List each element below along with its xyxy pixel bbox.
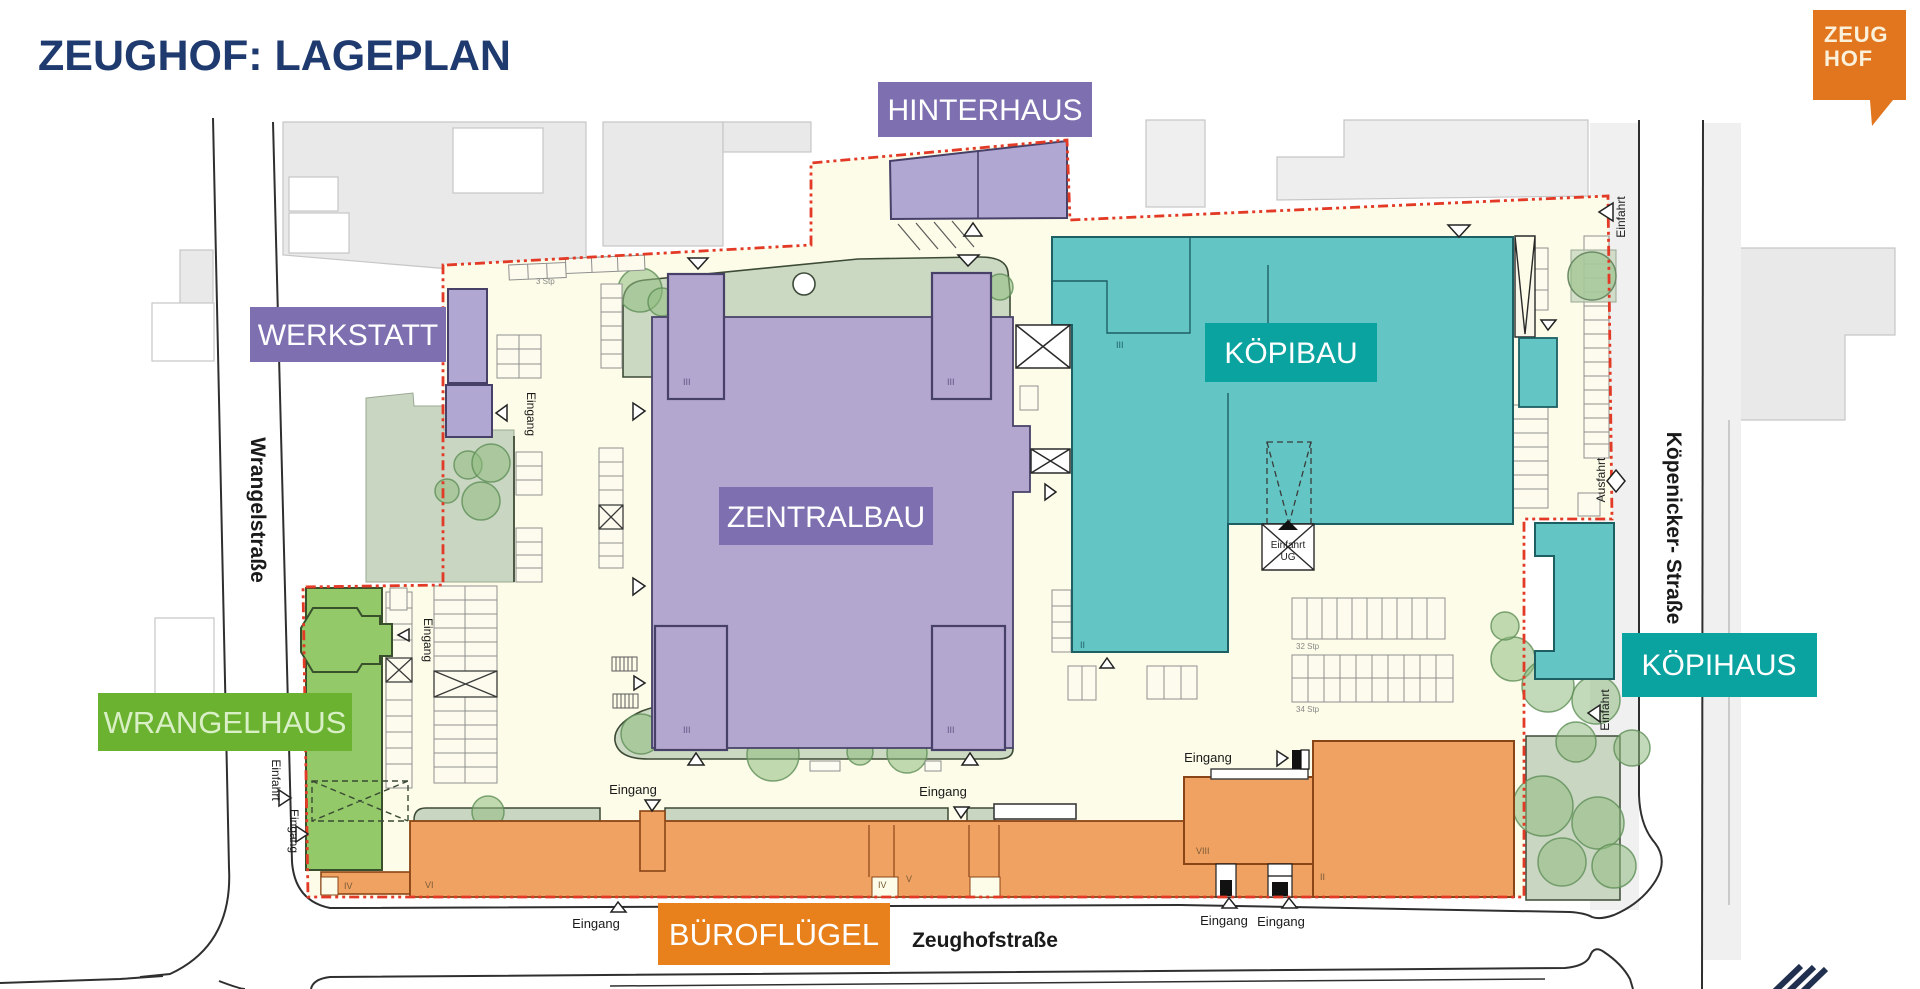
svg-text:HINTERHAUS: HINTERHAUS: [887, 94, 1082, 127]
svg-text:Eingang: Eingang: [1200, 913, 1248, 928]
svg-text:Einfahrt: Einfahrt: [1598, 689, 1612, 731]
svg-text:WERKSTATT: WERKSTATT: [258, 319, 439, 352]
svg-text:Eingang: Eingang: [421, 618, 435, 662]
svg-text:II: II: [1080, 640, 1085, 650]
svg-text:ZEUGHOF: LAGEPLAN: ZEUGHOF: LAGEPLAN: [38, 32, 511, 80]
svg-text:V: V: [906, 874, 912, 884]
svg-text:3 Stp: 3 Stp: [536, 277, 555, 286]
svg-text:Eingang: Eingang: [572, 916, 620, 931]
svg-text:WRANGELHAUS: WRANGELHAUS: [104, 705, 347, 740]
svg-text:VI: VI: [425, 880, 434, 890]
svg-text:Ausfahrt: Ausfahrt: [1594, 457, 1608, 502]
svg-text:HOF: HOF: [1824, 46, 1873, 71]
svg-text:III: III: [683, 377, 691, 387]
svg-text:Eingang: Eingang: [1257, 914, 1305, 929]
svg-text:Eingang: Eingang: [1184, 750, 1232, 765]
svg-text:Eingang: Eingang: [919, 784, 967, 799]
svg-text:KÖPIBAU: KÖPIBAU: [1224, 337, 1357, 370]
svg-text:III: III: [1116, 340, 1124, 350]
svg-text:Köpenicker- Straße: Köpenicker- Straße: [1662, 432, 1685, 625]
svg-text:32 Stp: 32 Stp: [1296, 642, 1320, 651]
svg-text:ZEUG: ZEUG: [1824, 22, 1888, 47]
svg-text:Einfahrt: Einfahrt: [1271, 540, 1306, 551]
svg-text:III: III: [683, 725, 691, 735]
svg-text:Eingang: Eingang: [287, 809, 301, 853]
svg-text:Zeughofstraße: Zeughofstraße: [912, 929, 1058, 952]
svg-text:III: III: [947, 725, 955, 735]
svg-text:Eingang: Eingang: [524, 392, 538, 436]
svg-text:IV: IV: [878, 880, 887, 890]
svg-text:Eingang: Eingang: [609, 782, 657, 797]
svg-text:KÖPIHAUS: KÖPIHAUS: [1641, 649, 1796, 682]
svg-text:IV: IV: [344, 881, 353, 891]
svg-text:Wrangelstraße: Wrangelstraße: [246, 437, 269, 583]
svg-text:34 Stp: 34 Stp: [1296, 705, 1320, 714]
svg-text:II: II: [1320, 872, 1325, 882]
svg-text:VIII: VIII: [1196, 846, 1210, 856]
svg-text:UG: UG: [1281, 552, 1296, 563]
svg-text:BÜROFLÜGEL: BÜROFLÜGEL: [669, 917, 879, 952]
svg-text:Einfahrt: Einfahrt: [1614, 196, 1628, 238]
svg-text:Einfahrt: Einfahrt: [269, 759, 283, 801]
svg-text:III: III: [947, 377, 955, 387]
svg-text:ZENTRALBAU: ZENTRALBAU: [727, 501, 925, 534]
